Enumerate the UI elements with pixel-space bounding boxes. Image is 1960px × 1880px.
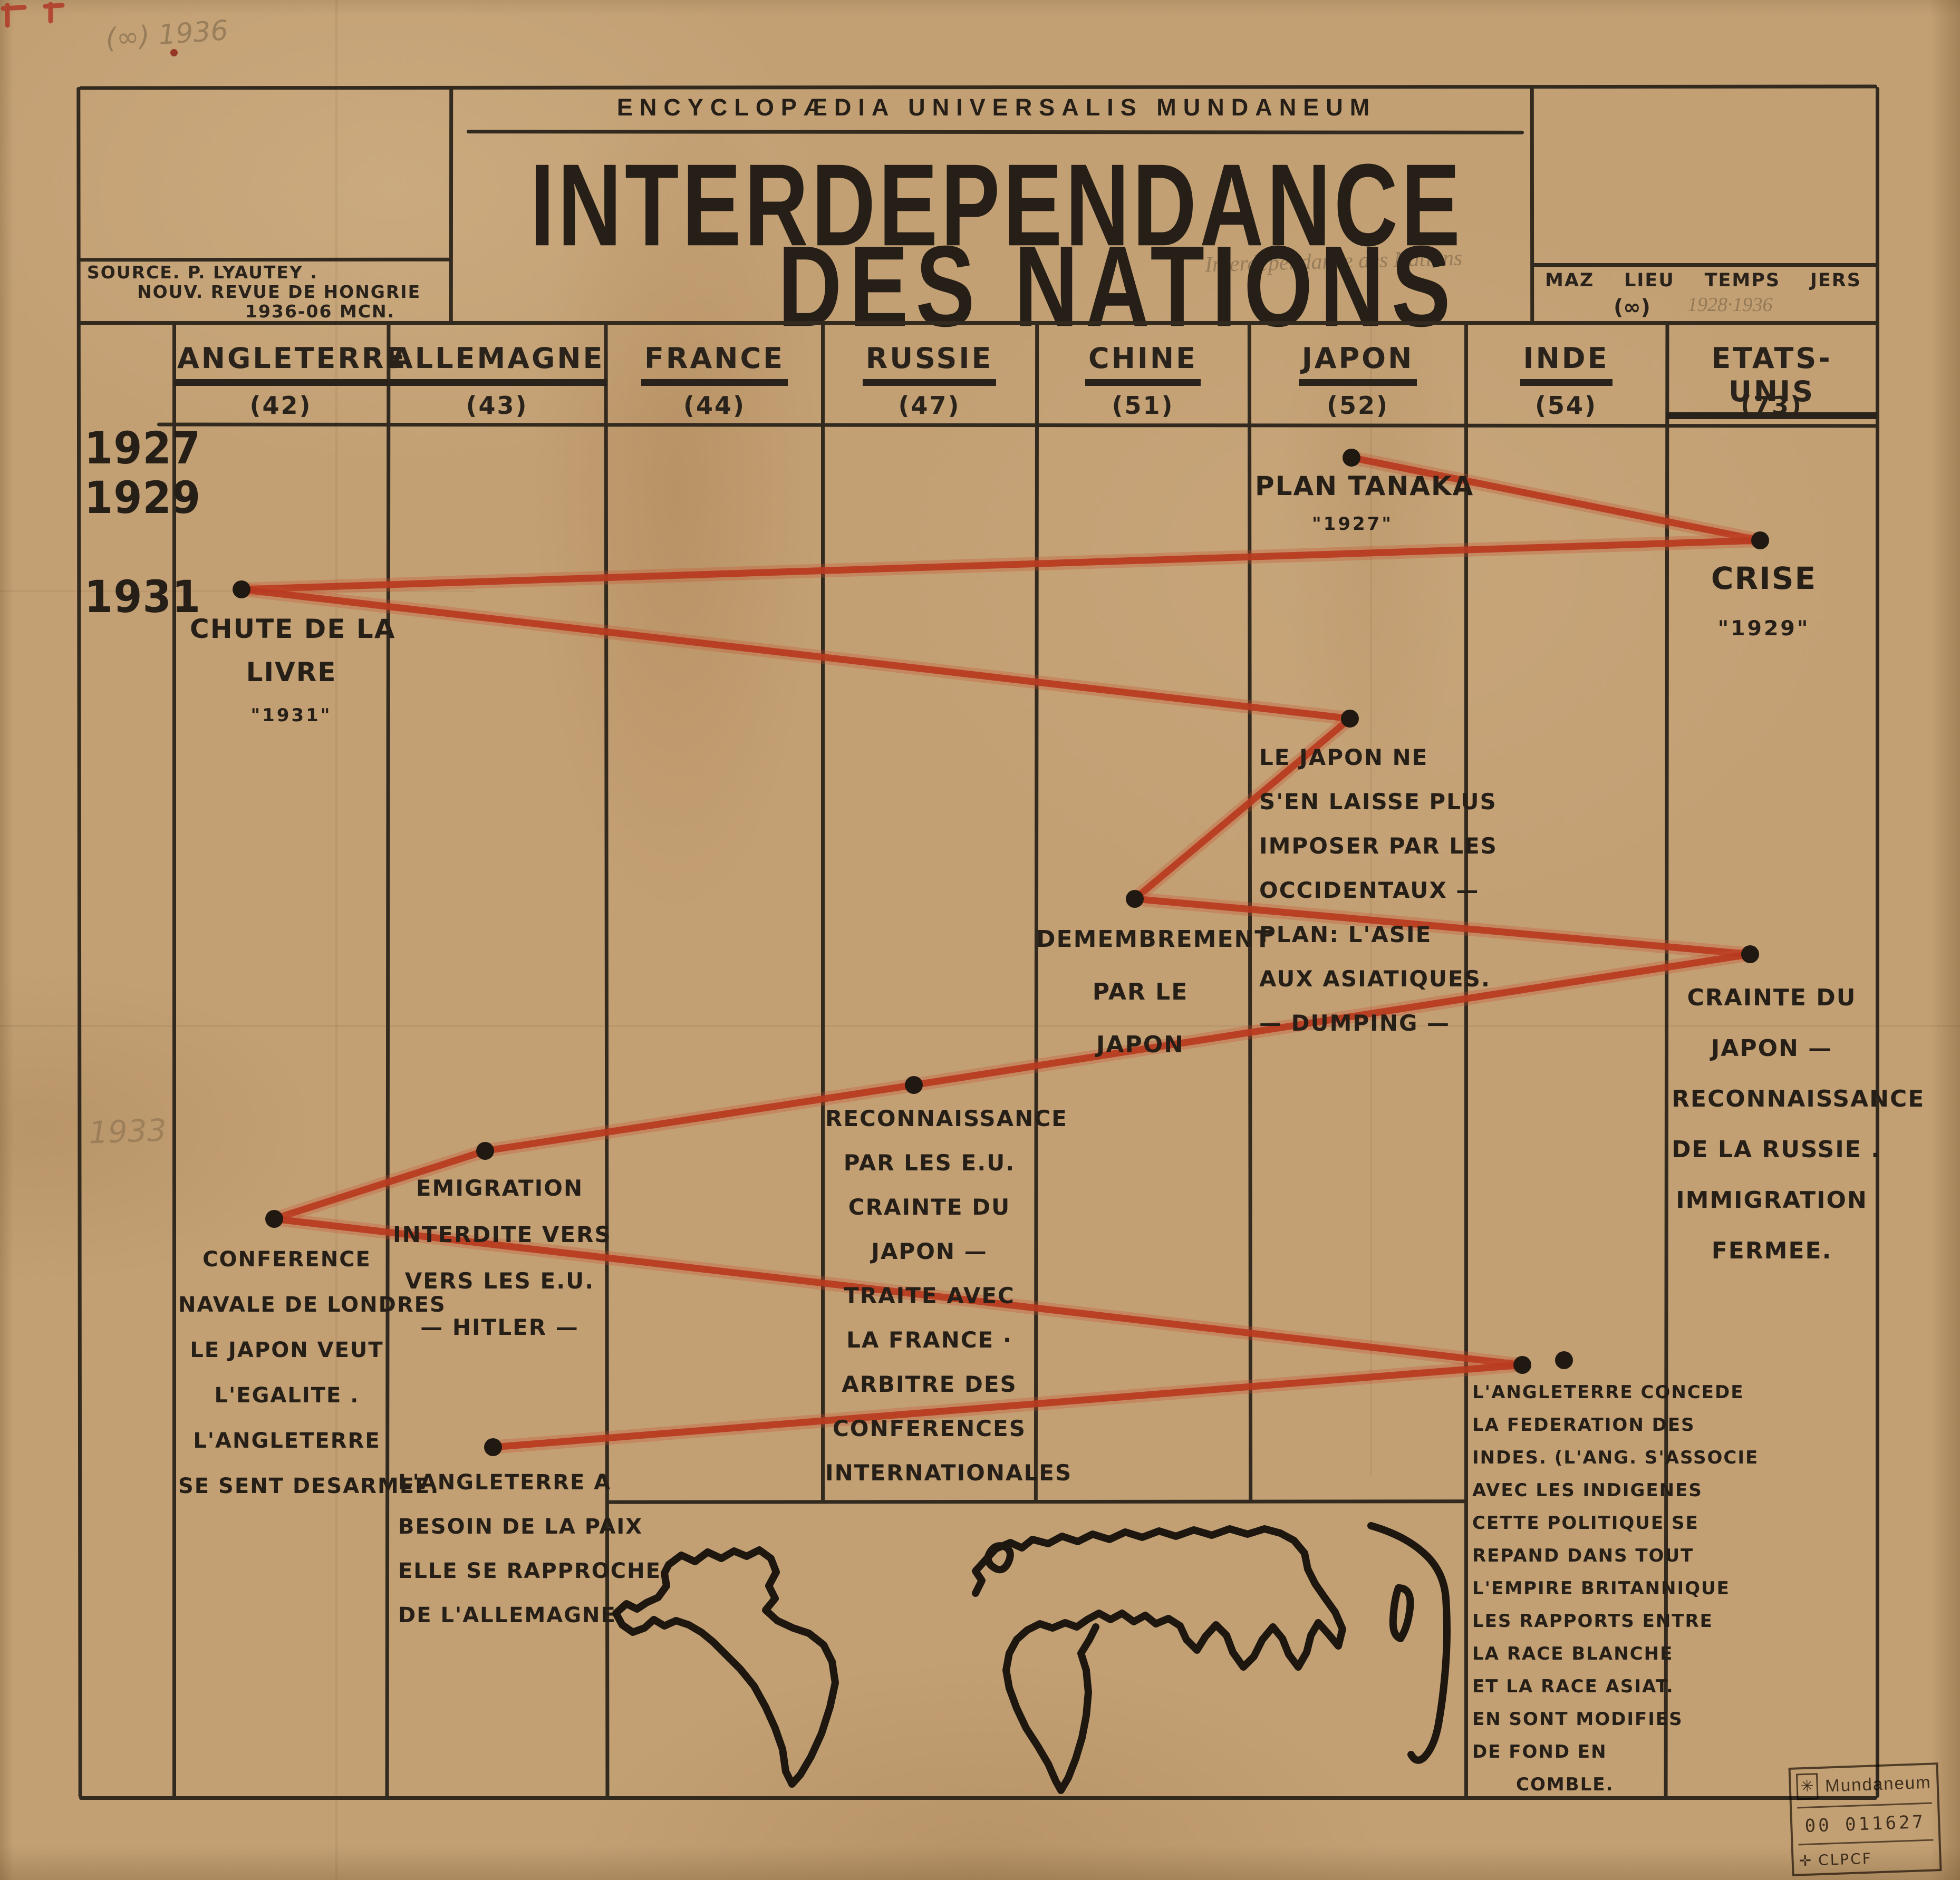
event-text-line: CRAINTE DU: [1672, 973, 1872, 1023]
source-line: NOUV. REVUE DE HONGRIE: [137, 282, 421, 302]
event-text-line: ET LA RACE ASIAT.: [1472, 1670, 1683, 1703]
event-dot-demembrement: [1126, 890, 1144, 908]
event-dot-crainte-japon-eu: [1741, 945, 1759, 963]
column-name: CHINE: [1085, 342, 1201, 386]
event-dot-plan-tanaka: [1343, 449, 1360, 467]
event-text-line: LA FRANCE ·: [825, 1318, 1034, 1362]
column-udc-code: (43): [388, 391, 606, 420]
event-text-line: RECONNAISSANCE: [825, 1097, 1034, 1141]
map-east-coast: [1371, 1526, 1447, 1760]
grid-vline: [76, 87, 82, 1798]
event-text-line: LE JAPON NE: [1259, 735, 1462, 780]
event-text-line: PAR LE: [1036, 966, 1244, 1019]
mundaneum-logo-icon: ✳: [1796, 1773, 1818, 1800]
event-text-line: OCCIDENTAUX —: [1259, 868, 1462, 913]
event-text-line: "1931": [190, 694, 393, 737]
event-label-emigration-hitler: EMIGRATIONINTERDITE VERSVERS LES E.U.— H…: [393, 1165, 606, 1351]
year-label-1929: 1929: [84, 472, 163, 524]
series-title: ENCYCLOPÆDIA UNIVERSALIS MUNDANEUM: [464, 94, 1529, 121]
grid-hline: [79, 85, 1877, 90]
event-text-line: CONFERENCE: [178, 1237, 395, 1282]
column-name: RUSSIE: [863, 342, 997, 386]
column-udc-code: (52): [1250, 391, 1466, 420]
column-header-angleterre: ANGLETERRE: [174, 342, 388, 386]
event-text-line: — DUMPING —: [1259, 1001, 1462, 1045]
facet-label-pers: JERS: [1810, 270, 1861, 291]
grid-hline: [157, 423, 1877, 428]
column-udc-code: (73): [1666, 391, 1877, 420]
year-label-1927: 1927: [84, 423, 163, 474]
event-text-line: CRISE: [1693, 554, 1835, 604]
source-line: SOURCE. P. LYAUTEY .: [87, 263, 421, 282]
grid-hline: [606, 1499, 1466, 1504]
event-text-line: ARBITRE DES: [825, 1362, 1034, 1407]
event-label-chute-livre: CHUTE DE LALIVRE"1931": [190, 607, 393, 737]
event-text-line: EN SONT MODIFIES: [1472, 1703, 1683, 1736]
event-label-demembrement: DEMEMBREMENTPAR LEJAPON: [1036, 913, 1244, 1071]
event-text-line: LA FEDERATION DES: [1472, 1409, 1683, 1441]
column-udc-code: (54): [1466, 391, 1666, 420]
event-text-line: DEMEMBREMENT: [1036, 913, 1244, 966]
event-dot-chute-livre: [233, 580, 250, 598]
event-text-line: REPAND DANS TOUT: [1472, 1539, 1683, 1572]
event-text-line: BESOIN DE LA PAIX: [398, 1505, 614, 1549]
event-text-line: CONFERENCES: [825, 1407, 1034, 1451]
event-text-line: AUX ASIATIQUES.: [1259, 957, 1462, 1001]
grid-hline: [1532, 263, 1877, 267]
facet-label-lieu: LIEU: [1624, 270, 1675, 291]
event-text-line: ELLE SE RAPPROCHE: [398, 1549, 614, 1593]
event-dot-federation-indes: [1513, 1356, 1531, 1374]
grid-hline: [79, 258, 451, 262]
facet-lieu-value: (∞): [1614, 295, 1650, 319]
grid-vline: [821, 323, 825, 1501]
column-name: JAPON: [1299, 342, 1417, 386]
column-header-chine: CHINE: [1036, 342, 1250, 386]
event-dot-crise: [1751, 531, 1769, 549]
year-label-1931: 1931: [84, 571, 163, 623]
event-text-line: FERMEE.: [1672, 1226, 1872, 1276]
event-text-line: CRAINTE DU: [825, 1185, 1034, 1229]
event-dot-reconnaissance-russie: [905, 1076, 923, 1094]
event-dot-besoin-paix: [484, 1438, 502, 1456]
link-chute-livre--japon-occidentaux: [242, 589, 1350, 719]
event-text-line: JAPON: [1036, 1019, 1244, 1071]
event-text-line: L'ANGLETERRE: [178, 1418, 395, 1464]
column-header-russie: RUSSIE: [823, 342, 1036, 386]
stamp-divider: [1799, 1839, 1934, 1845]
event-text-line: JAPON —: [1672, 1023, 1872, 1074]
source-line: 1936-06 MCN.: [245, 302, 421, 321]
column-name: INDE: [1520, 342, 1613, 386]
column-udc-code: (44): [606, 391, 823, 420]
event-text-line: AVEC LES INDIGENES: [1472, 1474, 1683, 1507]
event-text-line: "1927": [1255, 505, 1450, 543]
column-udc-code: (51): [1036, 391, 1250, 420]
event-text-line: COMBLE.: [1472, 1768, 1683, 1801]
event-text-line: INTERDITE VERS: [393, 1212, 606, 1258]
link-crise--chute-livre: [242, 540, 1760, 589]
event-label-crainte-japon-eu: CRAINTE DUJAPON —RECONNAISSANCEDE LA RUS…: [1672, 973, 1872, 1276]
event-label-plan-tanaka: PLAN TANAKA"1927": [1255, 467, 1450, 543]
source-note: SOURCE. P. LYAUTEY . NOUV. REVUE DE HONG…: [87, 263, 421, 321]
stamp-divider: [1797, 1803, 1932, 1809]
link-crise--chute-livre: [242, 540, 1760, 589]
grid-vline: [1464, 323, 1468, 1798]
page-title-line2: DES NATIONS: [707, 220, 1529, 353]
event-text-line: IMMIGRATION: [1672, 1175, 1872, 1226]
event-dot-emigration-hitler: [476, 1142, 494, 1160]
classification-facets: MAZ LIEU TEMPS JERS: [1545, 270, 1861, 291]
event-label-japon-occidentaux: LE JAPON NES'EN LAISSE PLUSIMPOSER PAR L…: [1259, 735, 1462, 1045]
event-label-reconnaissance-russie: RECONNAISSANCEPAR LES E.U.CRAINTE DUJAPO…: [825, 1097, 1034, 1495]
event-text-line: LA RACE BLANCHE: [1472, 1637, 1683, 1670]
grid-vline: [449, 87, 453, 323]
event-text-line: CHUTE DE LA: [190, 607, 393, 651]
event-label-crise: CRISE"1929": [1693, 554, 1835, 654]
column-name: ALLEMAGNE: [388, 342, 607, 386]
event-text-line: RECONNAISSANCE: [1672, 1074, 1872, 1125]
event-label-federation-indes: L'ANGLETERRE CONCEDELA FEDERATION DESIND…: [1472, 1376, 1683, 1801]
event-text-line: LE JAPON VEUT: [178, 1327, 395, 1373]
stamp-institution: Mundaneum: [1825, 1772, 1932, 1796]
grid-vline: [172, 323, 176, 1798]
event-text-line: JAPON —: [825, 1229, 1034, 1274]
column-header-inde: INDE: [1466, 342, 1666, 386]
event-dot-federation-indes: [1555, 1351, 1573, 1369]
event-text-line: SE SENT DESARMEE.: [178, 1464, 395, 1509]
mundaneum-stamp: ✳ Mundaneum 00 011627 ✛ CLPCF: [1788, 1762, 1942, 1876]
event-label-conference-navale: CONFERENCENAVALE DE LONDRESLE JAPON VEUT…: [178, 1237, 395, 1509]
grid-hline: [79, 321, 1877, 325]
pencil-year-1933: 1933: [88, 1112, 167, 1150]
stamp-symbol-icon: ✛: [1799, 1852, 1813, 1870]
pencil-note-top-left: (∞) 1936: [104, 15, 229, 55]
column-udc-code: (42): [174, 391, 388, 420]
column-header-allemagne: ALLEMAGNE: [388, 342, 606, 386]
link-chute-livre--japon-occidentaux: [242, 589, 1350, 719]
event-text-line: LES RAPPORTS ENTRE: [1472, 1605, 1683, 1637]
column-name: FRANCE: [641, 342, 788, 386]
column-header-japon: JAPON: [1250, 342, 1466, 386]
event-text-line: PLAN: L'ASIE: [1259, 913, 1462, 957]
map-americas: [616, 1550, 835, 1784]
grid-hline: [467, 130, 1524, 134]
event-text-line: IMPOSER PAR LES: [1259, 824, 1462, 868]
event-text-line: INDES. (L'ANG. S'ASSOCIE: [1472, 1441, 1683, 1474]
grid-vline: [1034, 323, 1039, 1501]
grid-vline: [1248, 323, 1252, 1501]
event-dot-japon-occidentaux: [1341, 710, 1359, 728]
column-udc-code: (47): [823, 391, 1036, 420]
event-text-line: DE LA RUSSIE .: [1672, 1125, 1872, 1175]
event-text-line: S'EN LAISSE PLUS: [1259, 780, 1462, 824]
facet-label-mat: MAZ: [1545, 270, 1594, 291]
event-text-line: "1929": [1693, 604, 1835, 654]
event-text-line: L'EGALITE .: [178, 1373, 395, 1418]
event-text-line: L'EMPIRE BRITANNIQUE: [1472, 1572, 1683, 1605]
facet-temps-value-pencil: 1928·1936: [1687, 293, 1773, 316]
event-text-line: L'ANGLETERRE A: [398, 1460, 614, 1505]
map-britain: [988, 1546, 1010, 1569]
column-name: ANGLETERRE: [174, 342, 410, 386]
event-text-line: PAR LES E.U.: [825, 1141, 1034, 1185]
scanned-chart-sheet: (∞) 1936 Interdépendance des Nations 193…: [0, 0, 1960, 1880]
column-header-france: FRANCE: [606, 342, 823, 386]
grid-vline: [1530, 87, 1534, 323]
event-text-line: DE L'ALLEMAGNE.: [398, 1593, 614, 1637]
event-text-line: TRAITE AVEC: [825, 1274, 1034, 1318]
stamp-inventory-number: 00 011627: [1798, 1811, 1933, 1837]
event-text-line: DE FOND EN: [1472, 1736, 1683, 1768]
map-japan: [1393, 1588, 1411, 1639]
facet-label-temps: TEMPS: [1705, 270, 1780, 291]
event-text-line: EMIGRATION: [393, 1165, 606, 1212]
map-eurasia-africa: [976, 1529, 1343, 1790]
event-text-line: L'ANGLETERRE CONCEDE: [1472, 1376, 1683, 1409]
event-text-line: NAVALE DE LONDRES: [178, 1282, 395, 1327]
stamp-code: CLPCF: [1818, 1850, 1873, 1869]
event-text-line: LIVRE: [190, 651, 393, 694]
grid-vline: [385, 323, 391, 1798]
event-text-line: INTERNATIONALES: [825, 1451, 1034, 1495]
event-text-line: PLAN TANAKA: [1255, 467, 1450, 505]
event-label-besoin-paix: L'ANGLETERRE ABESOIN DE LA PAIXELLE SE R…: [398, 1460, 614, 1637]
event-dot-conference-navale: [265, 1210, 283, 1228]
event-text-line: CETTE POLITIQUE SE: [1472, 1507, 1683, 1539]
